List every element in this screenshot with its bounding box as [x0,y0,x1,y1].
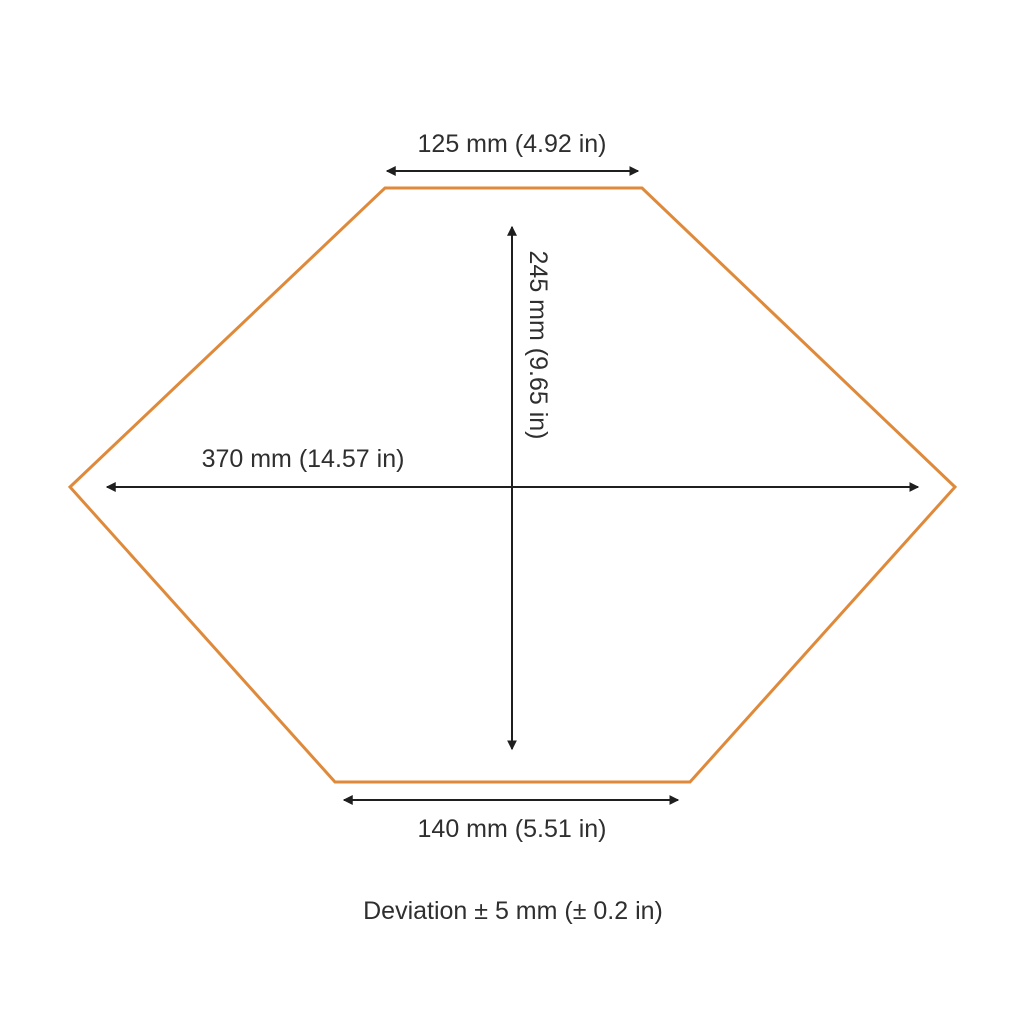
dimension-diagram: 125 mm (4.92 in) 245 mm (9.65 in) 370 mm… [0,0,1024,1024]
deviation-note: Deviation ± 5 mm (± 0.2 in) [363,897,663,925]
top-width-label: 125 mm (4.92 in) [418,130,607,158]
total-width-label: 370 mm (14.57 in) [202,445,405,473]
hexagon-diagram-svg: 125 mm (4.92 in) 245 mm (9.65 in) 370 mm… [0,0,1024,1024]
height-label: 245 mm (9.65 in) [524,251,552,440]
bottom-width-label: 140 mm (5.51 in) [418,815,607,843]
